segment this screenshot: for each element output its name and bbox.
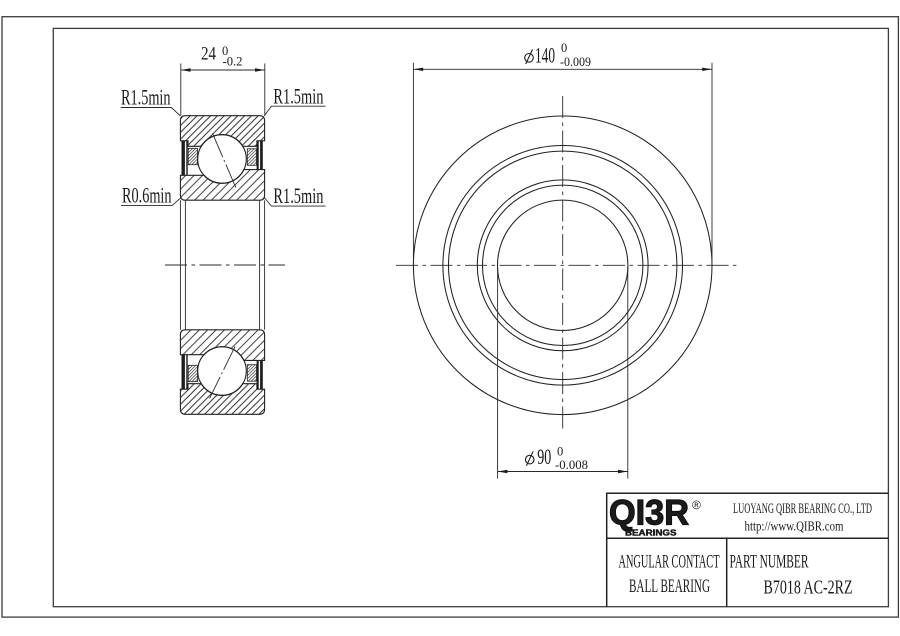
svg-text:PART NUMBER: PART NUMBER [730, 553, 809, 573]
svg-text:0: 0 [557, 444, 563, 458]
svg-text:http://www.QIBR.com: http://www.QIBR.com [745, 518, 844, 533]
svg-text:-0.008: -0.008 [555, 458, 588, 472]
svg-text:B7018 AC-2RZ: B7018 AC-2RZ [764, 578, 853, 599]
svg-text:0: 0 [561, 41, 567, 55]
svg-text:®: ® [692, 498, 701, 512]
svg-text:24: 24 [201, 44, 216, 65]
svg-text:BALL BEARING: BALL BEARING [629, 577, 710, 597]
svg-text:-0.009: -0.009 [560, 55, 591, 69]
svg-text:-0.2: -0.2 [223, 55, 243, 69]
svg-text:90: 90 [537, 444, 551, 469]
svg-text:140: 140 [535, 42, 555, 67]
svg-text:BEARINGS: BEARINGS [625, 528, 677, 537]
svg-text:LUOYANG QIBR BEARING CO., LTD: LUOYANG QIBR BEARING CO., LTD [733, 501, 872, 517]
svg-text:QI3R: QI3R [609, 494, 689, 533]
svg-text:ANGULAR CONTACT: ANGULAR CONTACT [619, 553, 720, 573]
svg-text:R1.5min: R1.5min [273, 183, 323, 208]
svg-text:R1.5min: R1.5min [273, 84, 323, 109]
svg-text:R1.5min: R1.5min [121, 85, 171, 110]
svg-text:R0.6min: R0.6min [122, 183, 172, 208]
